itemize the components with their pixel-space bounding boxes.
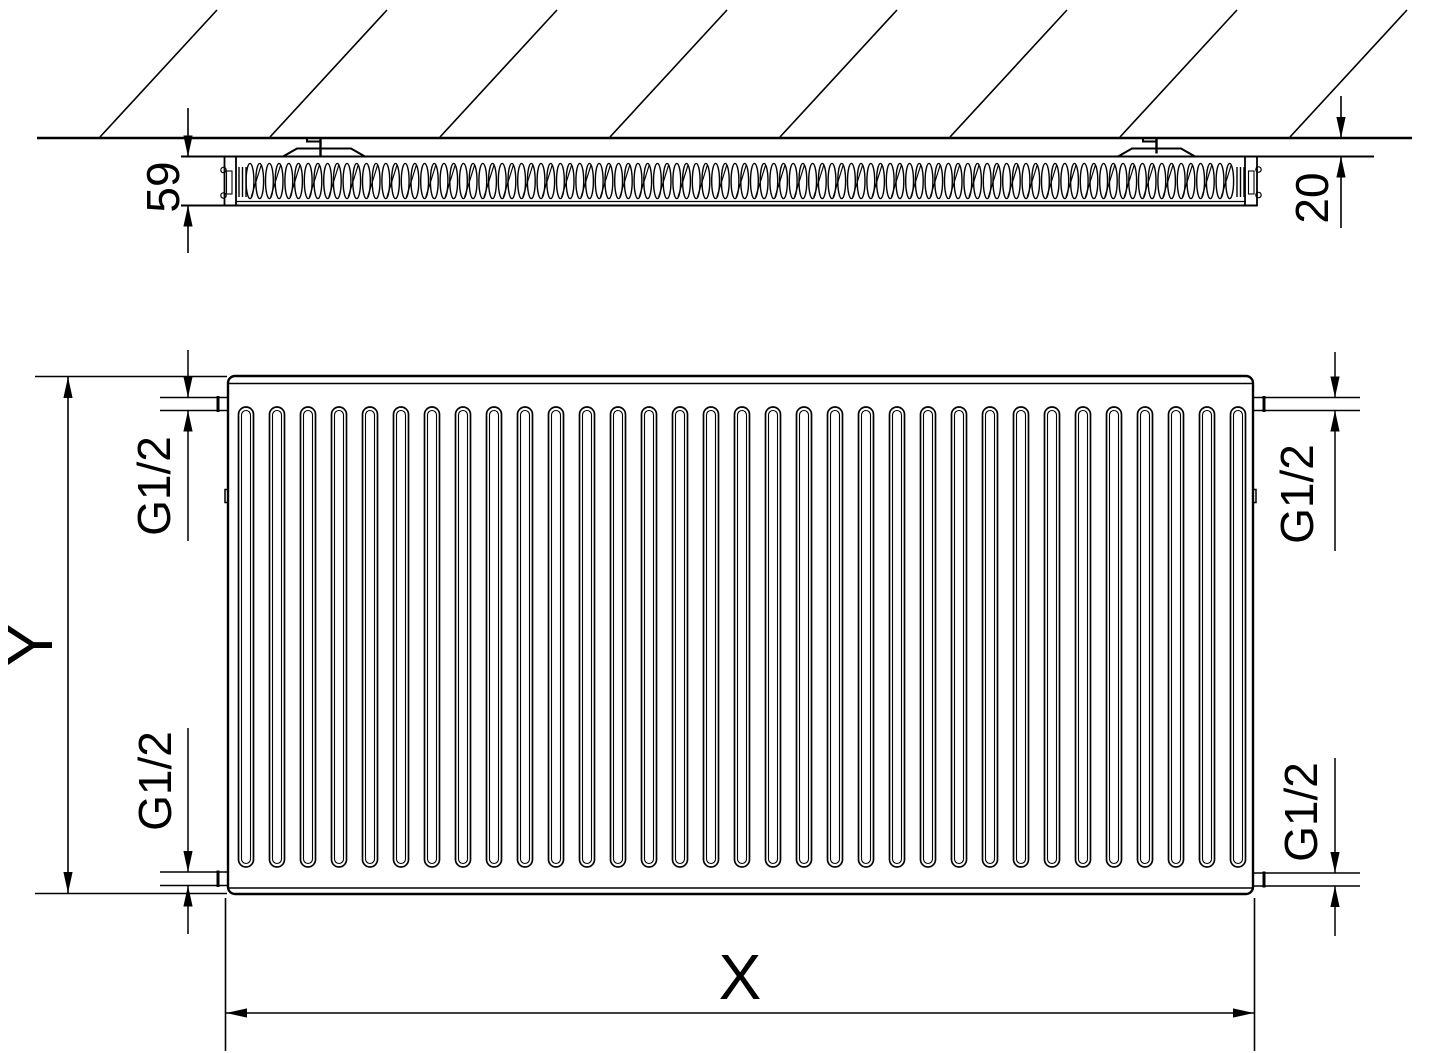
radiator-panel-outline (228, 376, 1253, 894)
dim-height: Y (0, 377, 227, 894)
end-plate-right (1245, 157, 1257, 206)
width-dimension-label: X (719, 941, 762, 1013)
wall-bracket-left (283, 139, 365, 157)
wall-clearance-dimension-label: 20 (1286, 172, 1338, 223)
height-dimension-label: Y (0, 624, 66, 667)
connection-label-bottom-left: G1/2 (129, 731, 181, 831)
end-plate-left-clip (227, 171, 233, 194)
dim-connection-bottom-left: G1/2 (129, 728, 188, 934)
wall-section (37, 10, 1412, 138)
connection-label-bottom-right: G1/2 (1275, 762, 1327, 862)
dim-connection-top-right: G1/2 (1271, 352, 1335, 551)
connection-stub-top-left (160, 396, 228, 412)
depth-dimension-label: 59 (137, 161, 189, 212)
connection-label-top-right: G1/2 (1271, 444, 1323, 544)
connection-stub-bottom-right (1253, 872, 1360, 888)
connection-label-top-left: G1/2 (128, 436, 180, 536)
end-plate-right-clip (1249, 171, 1255, 194)
radiator-top-view (181, 139, 1374, 206)
dim-width: X (226, 898, 1255, 1051)
connection-stub-bottom-left (160, 871, 228, 888)
panel-channels (239, 407, 1246, 867)
wall-bracket-right (1118, 139, 1195, 157)
convector-fins (239, 163, 1244, 198)
dim-connection-top-left: G1/2 (128, 350, 188, 541)
radiator-front-view (160, 376, 1360, 894)
wall-hatching (100, 10, 1407, 137)
radiator-dimension-drawing: 59 20 Y X G1/2 (0, 0, 1431, 1053)
connection-stub-top-right (1253, 396, 1360, 412)
dim-depth: 59 (137, 108, 189, 253)
dim-wall-clearance: 20 (1286, 96, 1341, 228)
dim-connection-bottom-right: G1/2 (1275, 758, 1335, 936)
drawing-canvas: 59 20 Y X G1/2 (0, 0, 1431, 1053)
